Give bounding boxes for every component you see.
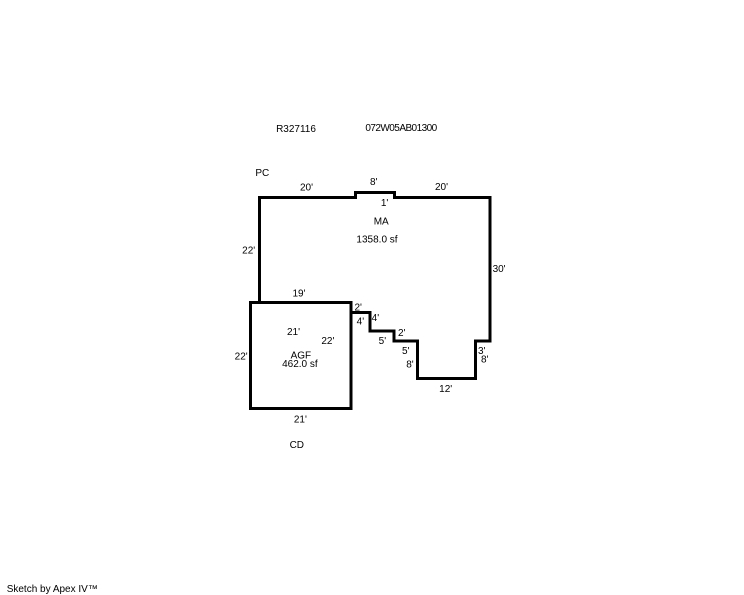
svg-text:30': 30'	[493, 264, 506, 275]
svg-text:4': 4'	[357, 317, 365, 328]
svg-text:22': 22'	[235, 352, 248, 363]
svg-text:20': 20'	[435, 182, 448, 193]
svg-text:21': 21'	[287, 327, 300, 338]
svg-text:R327116: R327116	[276, 124, 316, 135]
svg-text:22': 22'	[321, 336, 334, 347]
svg-text:Sketch by Apex IV™: Sketch by Apex IV™	[7, 584, 98, 595]
svg-text:19': 19'	[292, 289, 305, 300]
svg-text:20': 20'	[300, 183, 313, 194]
svg-text:5': 5'	[402, 346, 410, 357]
svg-text:2': 2'	[354, 303, 362, 314]
svg-text:5': 5'	[379, 336, 387, 347]
svg-text:462.0 sf: 462.0 sf	[282, 359, 318, 370]
svg-text:PC: PC	[255, 168, 269, 179]
svg-text:072W05AB01300: 072W05AB01300	[365, 123, 437, 134]
svg-text:MA: MA	[374, 216, 389, 227]
svg-text:8': 8'	[370, 177, 378, 188]
svg-text:1358.0 sf: 1358.0 sf	[356, 234, 397, 245]
svg-text:8': 8'	[406, 360, 414, 371]
svg-text:CD: CD	[290, 440, 304, 451]
svg-text:22': 22'	[242, 245, 255, 256]
svg-text:2': 2'	[398, 328, 406, 339]
svg-text:12': 12'	[439, 384, 452, 395]
svg-text:1': 1'	[381, 198, 389, 209]
svg-text:8': 8'	[481, 355, 489, 366]
svg-text:21': 21'	[294, 415, 307, 426]
svg-text:4': 4'	[372, 313, 380, 324]
